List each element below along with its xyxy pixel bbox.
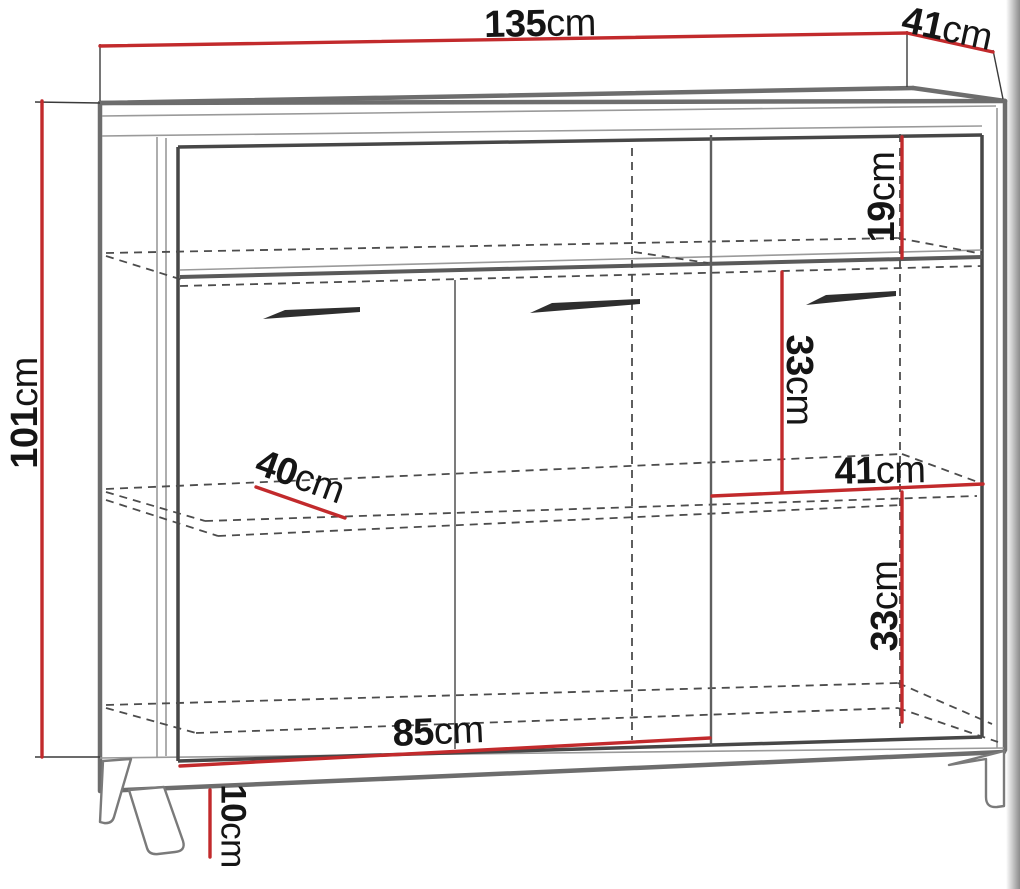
dimension-value: 33	[864, 610, 906, 651]
dimension-value: 101	[4, 407, 46, 469]
ext-depth-right	[993, 50, 1003, 99]
cabinet-line-drawing	[0, 0, 1020, 889]
mid-shelf-left-diag-b-dash	[106, 500, 218, 536]
door-handle-right	[806, 291, 896, 305]
dimension-unit: cm	[433, 709, 484, 753]
floor-left-diag-dash	[106, 708, 196, 733]
dimension-label-upper-right-shelf: 33cm	[780, 335, 818, 426]
top-shelf-back-dash	[106, 238, 898, 253]
inner-frame-top	[178, 135, 982, 147]
dimension-label-top-shelf: 19cm	[863, 152, 901, 243]
dimension-unit: cm	[214, 822, 253, 868]
floor-front-dash	[196, 708, 898, 733]
dimension-label-doors-width: 85cm	[392, 711, 485, 753]
dimension-label-right-compartment: 41cm	[834, 451, 926, 491]
door-handle-middle	[530, 299, 640, 313]
dimension-label-height-left: 101cm	[6, 357, 44, 469]
dimension-unit: cm	[546, 2, 596, 45]
page-edge-shadow	[1006, 0, 1020, 889]
doors	[263, 135, 896, 749]
dimension-value: 41	[834, 450, 876, 493]
leg-front-right	[949, 751, 1004, 807]
dimension-label-width-top: 135cm	[484, 4, 596, 44]
dimension-label-leg-height: 10cm	[216, 784, 251, 868]
dimension-value: 85	[392, 711, 435, 755]
floor-back-dash	[106, 683, 898, 705]
dimension-unit: cm	[864, 561, 906, 611]
dimension-unit: cm	[4, 357, 46, 407]
dimension-value: 135	[484, 3, 547, 46]
dimension-diagram: 135cm 41cm 101cm 19cm 33cm 41cm 33cm 40c…	[0, 0, 1020, 889]
extension-lines	[35, 31, 1003, 757]
top-shelf-left-diag-dash	[106, 256, 186, 281]
top-shelf	[180, 250, 982, 277]
ext-height-top	[35, 102, 100, 103]
dimension-unit: cm	[861, 152, 903, 202]
mid-shelf-left-diag-a-dash	[106, 492, 205, 521]
dimension-unit: cm	[778, 376, 820, 426]
dimension-value: 10	[214, 784, 253, 822]
leg-front-left	[129, 787, 184, 854]
dimension-lines	[42, 33, 993, 857]
dimension-unit: cm	[875, 449, 925, 492]
dimension-value: 19	[861, 201, 903, 242]
floor-right-diag-a-dash	[898, 683, 992, 724]
top-rail-line-b	[102, 126, 982, 136]
door-handle-left	[263, 307, 360, 319]
dimension-label-lower-right-shelf: 33cm	[866, 561, 904, 652]
dimension-value: 33	[778, 335, 820, 376]
top-rail-line-a	[102, 106, 996, 116]
